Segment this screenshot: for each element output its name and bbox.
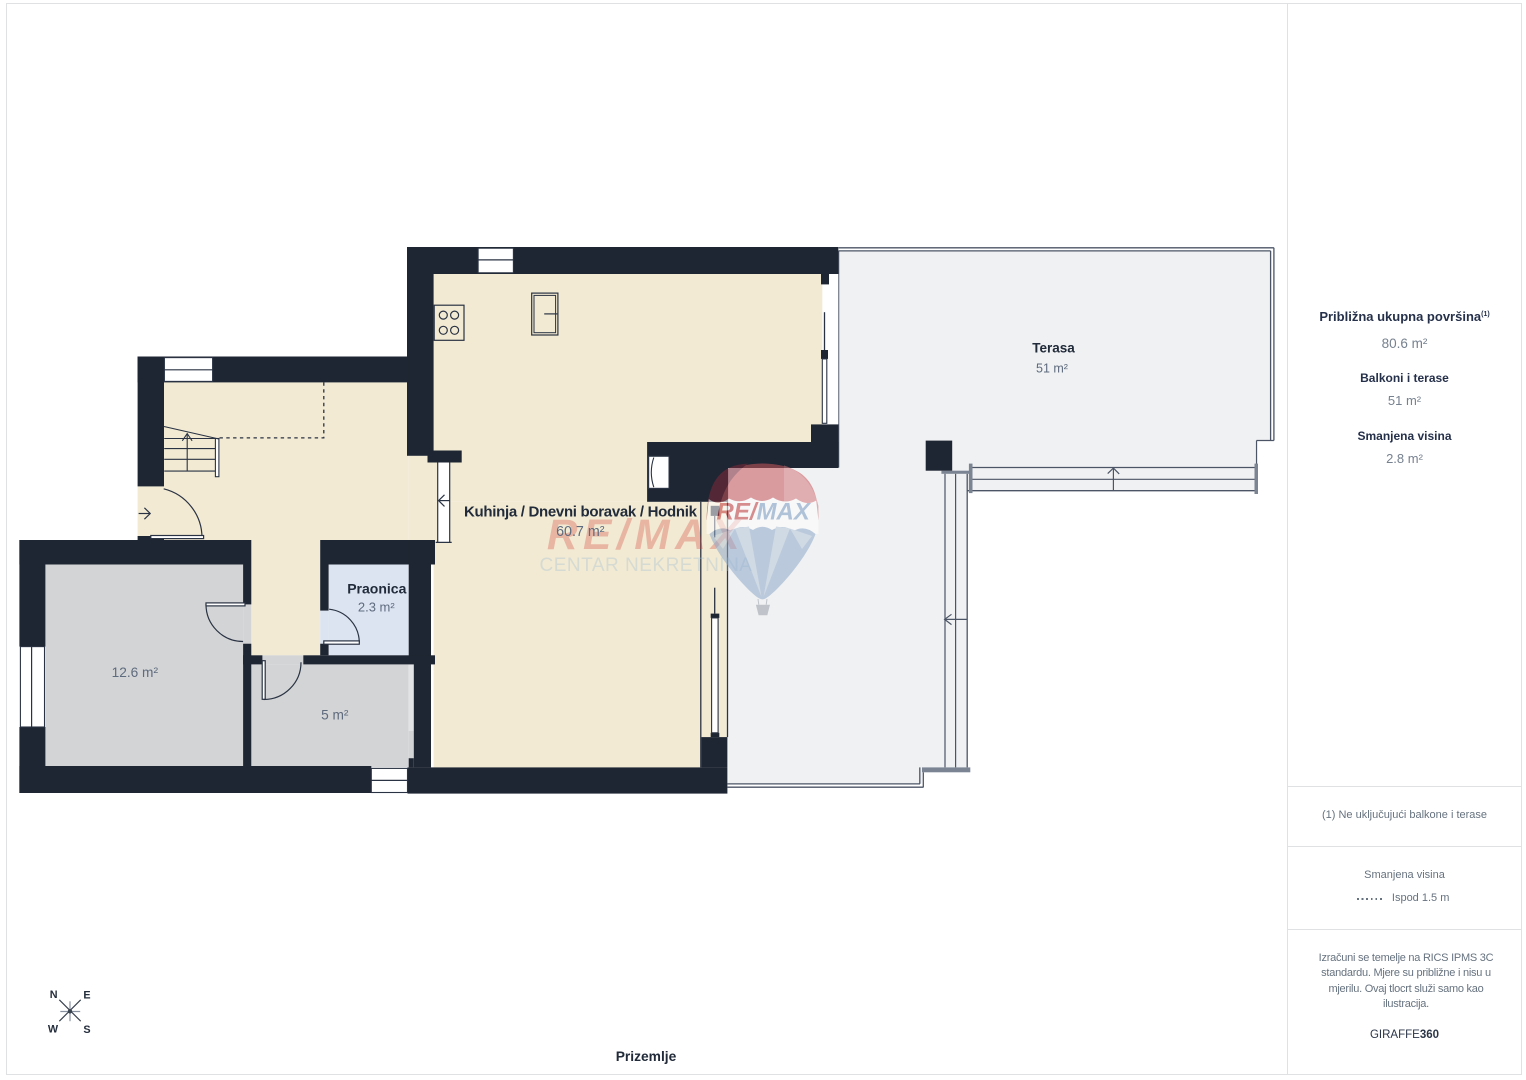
svg-text:12.6 m²: 12.6 m² xyxy=(112,665,159,680)
svg-text:W: W xyxy=(48,1024,59,1036)
svg-text:60.7 m²: 60.7 m² xyxy=(556,524,605,540)
svg-text:Prizemlje: Prizemlje xyxy=(616,1049,677,1064)
svg-text:Kuhinja / Dnevni boravak / Hod: Kuhinja / Dnevni boravak / Hodnik xyxy=(464,504,698,521)
svg-text:Terasa: Terasa xyxy=(1032,341,1075,356)
svg-text:Praonica: Praonica xyxy=(347,581,406,597)
svg-text:CENTAR NEKRETNINA: CENTAR NEKRETNINA xyxy=(540,555,753,576)
svg-text:2.3 m²: 2.3 m² xyxy=(358,600,396,615)
svg-text:51 m²: 51 m² xyxy=(1036,362,1068,376)
svg-text:E: E xyxy=(83,990,90,1002)
svg-text:N: N xyxy=(50,989,58,1001)
svg-text:S: S xyxy=(83,1024,90,1036)
svg-text:5 m²: 5 m² xyxy=(321,708,349,723)
svg-text:RE/MAX: RE/MAX xyxy=(717,499,812,526)
